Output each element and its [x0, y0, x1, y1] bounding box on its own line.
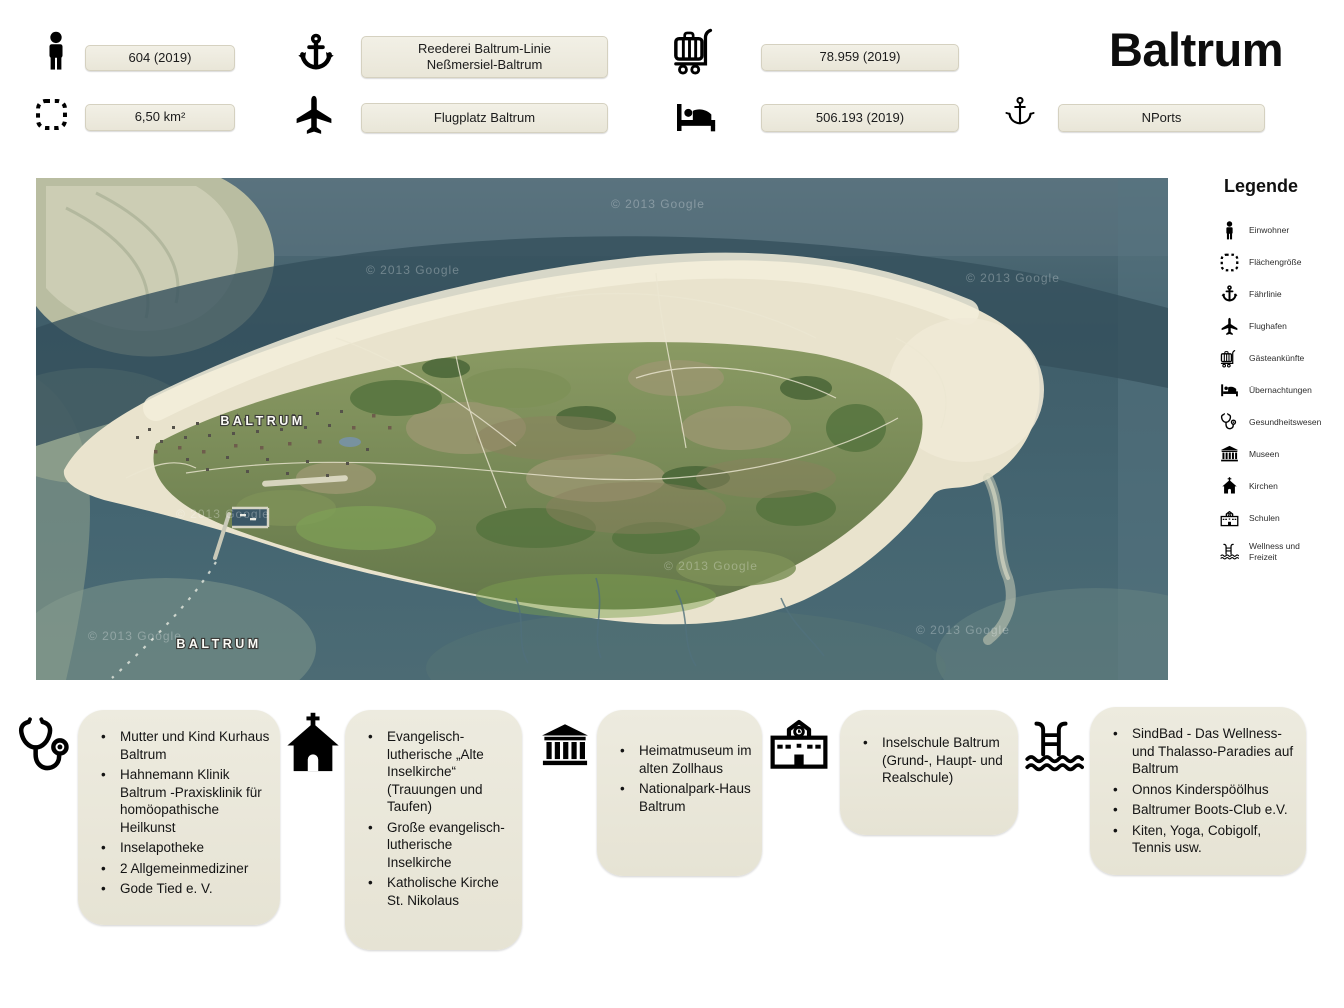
legend-label: Übernachtungen [1249, 385, 1311, 396]
legend-item-museen: Museen [1220, 445, 1336, 464]
wellness-list: SindBad - Das Wellness- und Thalasso-Par… [1090, 707, 1306, 872]
legend-item-flaechengroesse: Flächengröße [1220, 253, 1336, 272]
school-icon [1220, 509, 1239, 528]
list-item: Kiten, Yoga, Cobigolf, Tennis usw. [1104, 822, 1296, 857]
faehrlinie-value-box: Reederei Baltrum-Linie Neßmersiel-Baltru… [361, 36, 608, 78]
schulen-list: Inselschule Baltrum (Grund-, Haupt- und … [840, 710, 1018, 802]
anchor-icon [295, 30, 337, 78]
bed-icon [1220, 381, 1239, 400]
list-item: Nationalpark-Haus Baltrum [611, 780, 752, 815]
legend-item-flughafen: Flughafen [1220, 317, 1336, 336]
pool-icon [1024, 718, 1084, 774]
legend-item-uebernachtungen: Übernachtungen [1220, 381, 1336, 400]
satellite-map-image: © 2013 Google © 2013 Google © 2013 Googl… [36, 178, 1168, 680]
list-item: Hahnemann Klinik Baltrum -Praxisklinik f… [92, 766, 270, 836]
legend-item-wellness: Wellness und Freizeit [1220, 541, 1336, 562]
nports-value-box: NPorts [1058, 104, 1265, 132]
legend-item-faehrlinie: Fährlinie [1220, 285, 1336, 304]
legend-item-gesundheitswesen: Gesundheitswesen [1220, 413, 1336, 432]
map-watermark: © 2013 Google [366, 263, 460, 277]
legend-label: Einwohner [1249, 225, 1311, 236]
map-watermark: © 2013 Google [916, 623, 1010, 637]
list-item: 2 Allgemeinmediziner [92, 860, 270, 878]
legend-label: Gesundheitswesen [1249, 417, 1311, 428]
legend-item-kirchen: Kirchen [1220, 477, 1336, 496]
person-icon [1220, 221, 1239, 240]
list-item: Große evangelisch-lutherische Inselkirch… [359, 819, 512, 872]
bed-icon [671, 98, 721, 138]
map-watermark: © 2013 Google [664, 559, 758, 573]
list-item: Inselapotheke [92, 839, 270, 857]
list-item: SindBad - Das Wellness- und Thalasso-Par… [1104, 725, 1296, 778]
stethoscope-icon [1220, 413, 1239, 432]
luggage-icon [672, 25, 722, 77]
museum-icon [1220, 445, 1239, 464]
legend-label: Schulen [1249, 513, 1311, 524]
plane-icon [1220, 317, 1239, 336]
map-watermark: © 2013 Google [611, 197, 705, 211]
person-icon [39, 28, 73, 74]
satellite-map: © 2013 Google © 2013 Google © 2013 Googl… [36, 178, 1168, 680]
legend-label: Fährlinie [1249, 289, 1311, 300]
museen-list: Heimatmuseum im alten Zollhaus Nationalp… [597, 710, 762, 830]
flaeche-value-box: 6,50 km² [85, 104, 235, 131]
list-item: Gode Tied e. V. [92, 880, 270, 898]
luggage-icon [1220, 349, 1239, 368]
list-item: Onnos Kinderspöölhus [1104, 781, 1296, 799]
legend-label: Museen [1249, 449, 1311, 460]
legend-item-gaesteankuenfte: Gästeankünfte [1220, 349, 1336, 368]
faehrlinie-line2: Neßmersiel-Baltrum [427, 57, 543, 73]
school-icon [768, 716, 830, 772]
faehrlinie-line1: Reederei Baltrum-Linie [418, 41, 551, 57]
list-item: Evangelisch-lutherische „Alte Inselkirch… [359, 728, 512, 816]
legend-title: Legende [1186, 176, 1336, 197]
map-label-town: BALTRUM [220, 414, 305, 428]
list-item: Heimatmuseum im alten Zollhaus [611, 742, 752, 777]
card-kirchen: Evangelisch-lutherische „Alte Inselkirch… [345, 710, 522, 950]
list-item: Baltrumer Boots-Club e.V. [1104, 801, 1296, 819]
nports-value: NPorts [1142, 110, 1182, 126]
flugplatz-value: Flugplatz Baltrum [434, 110, 535, 126]
legend-label: Kirchen [1249, 481, 1311, 492]
anchor-icon [1003, 90, 1037, 136]
plane-icon [292, 94, 336, 136]
museum-icon [536, 722, 594, 772]
legend-label: Wellness und Freizeit [1249, 541, 1311, 562]
legend-label: Flughafen [1249, 321, 1311, 332]
uebernachtungen-value-box: 506.193 (2019) [761, 104, 959, 132]
list-item: Inselschule Baltrum (Grund-, Haupt- und … [854, 734, 1008, 787]
page-title: Baltrum [1096, 22, 1296, 77]
gaesteankuenfte-value: 78.959 (2019) [820, 49, 901, 65]
card-museen: Heimatmuseum im alten Zollhaus Nationalp… [597, 710, 762, 876]
list-item: Katholische Kirche St. Nikolaus [359, 874, 512, 909]
list-item: Mutter und Kind Kurhaus Baltrum [92, 728, 270, 763]
card-wellness: SindBad - Das Wellness- und Thalasso-Par… [1090, 707, 1306, 875]
card-schulen: Inselschule Baltrum (Grund-, Haupt- und … [840, 710, 1018, 835]
area-icon [1220, 253, 1239, 272]
gesundheitswesen-list: Mutter und Kind Kurhaus Baltrum Hahneman… [78, 710, 280, 913]
map-watermark: © 2013 Google [966, 271, 1060, 285]
map-label-island: BALTRUM [176, 637, 261, 651]
legend-label: Gästeankünfte [1249, 353, 1311, 364]
flaeche-value: 6,50 km² [135, 109, 186, 125]
legend-item-einwohner: Einwohner [1220, 221, 1336, 240]
einwohner-value: 604 (2019) [129, 50, 192, 66]
gaesteankuenfte-value-box: 78.959 (2019) [761, 44, 959, 71]
flugplatz-value-box: Flugplatz Baltrum [361, 103, 608, 133]
map-watermark: © 2013 Google [176, 507, 270, 521]
map-watermark: © 2013 Google [88, 629, 182, 643]
area-icon [35, 98, 68, 131]
uebernachtungen-value: 506.193 (2019) [816, 110, 904, 126]
legend-item-schulen: Schulen [1220, 509, 1336, 528]
kirchen-list: Evangelisch-lutherische „Alte Inselkirch… [345, 710, 522, 924]
anchor-icon [1220, 285, 1239, 304]
stethoscope-icon [16, 710, 78, 786]
pool-icon [1220, 542, 1239, 561]
einwohner-value-box: 604 (2019) [85, 45, 235, 71]
card-gesundheitswesen: Mutter und Kind Kurhaus Baltrum Hahneman… [78, 710, 280, 925]
legend: Legende Einwohner Flächengröße Fährlinie… [1186, 176, 1336, 562]
church-icon [281, 712, 345, 780]
church-icon [1220, 477, 1239, 496]
legend-label: Flächengröße [1249, 257, 1311, 268]
